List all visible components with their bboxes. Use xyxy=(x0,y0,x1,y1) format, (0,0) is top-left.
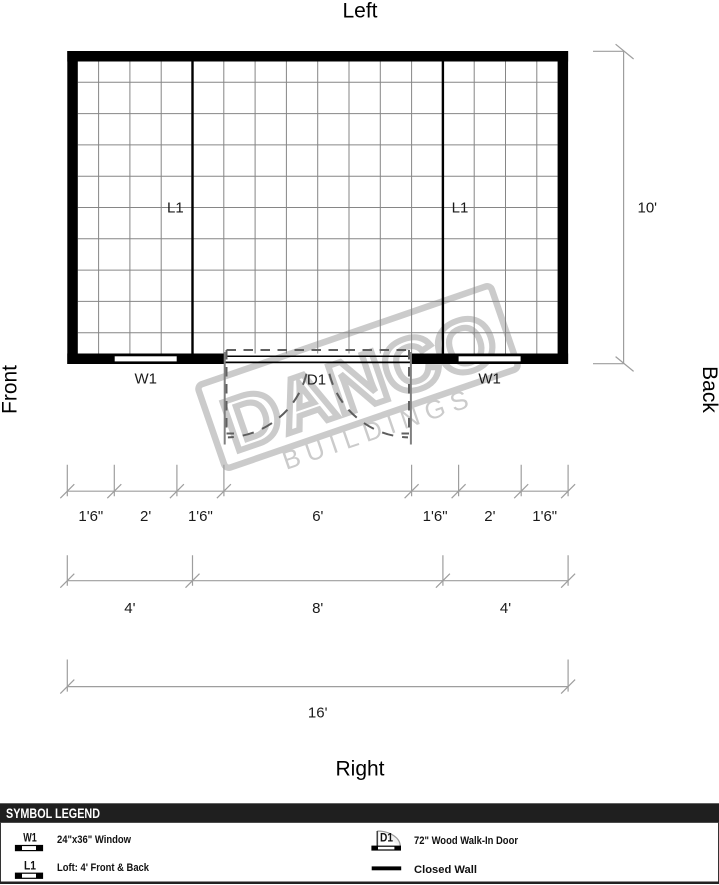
svg-text:2': 2' xyxy=(140,508,151,525)
svg-text:1'6": 1'6" xyxy=(188,508,213,525)
svg-text:24"x36" Window: 24"x36" Window xyxy=(57,834,131,846)
svg-text:W1: W1 xyxy=(23,833,37,845)
svg-text:Right: Right xyxy=(335,758,384,781)
svg-text:72" Wood Walk-In Door: 72" Wood Walk-In Door xyxy=(414,835,519,847)
svg-text:L1: L1 xyxy=(24,861,37,873)
svg-text:Back: Back xyxy=(698,366,719,413)
svg-text:6': 6' xyxy=(312,508,323,525)
svg-text:W1: W1 xyxy=(134,371,157,388)
svg-text:W1: W1 xyxy=(478,371,501,388)
svg-text:10': 10' xyxy=(638,199,658,216)
svg-text:1'6": 1'6" xyxy=(78,508,103,525)
svg-text:Left: Left xyxy=(342,0,377,23)
svg-text:D1: D1 xyxy=(380,833,394,845)
svg-text:D1: D1 xyxy=(307,372,326,389)
svg-text:4': 4' xyxy=(500,600,511,617)
svg-text:L1: L1 xyxy=(452,200,469,217)
svg-text:L1: L1 xyxy=(167,200,184,217)
svg-text:8': 8' xyxy=(312,600,323,617)
svg-text:SYMBOL LEGEND: SYMBOL LEGEND xyxy=(6,806,100,821)
svg-text:Closed Wall: Closed Wall xyxy=(414,864,477,876)
svg-text:2': 2' xyxy=(484,508,495,525)
svg-text:16': 16' xyxy=(308,704,328,721)
svg-text:1'6": 1'6" xyxy=(532,508,557,525)
svg-text:1'6": 1'6" xyxy=(423,508,448,525)
svg-text:Loft: 4' Front & Back: Loft: 4' Front & Back xyxy=(57,862,150,874)
svg-text:Front: Front xyxy=(0,365,22,414)
svg-text:4': 4' xyxy=(124,600,135,617)
